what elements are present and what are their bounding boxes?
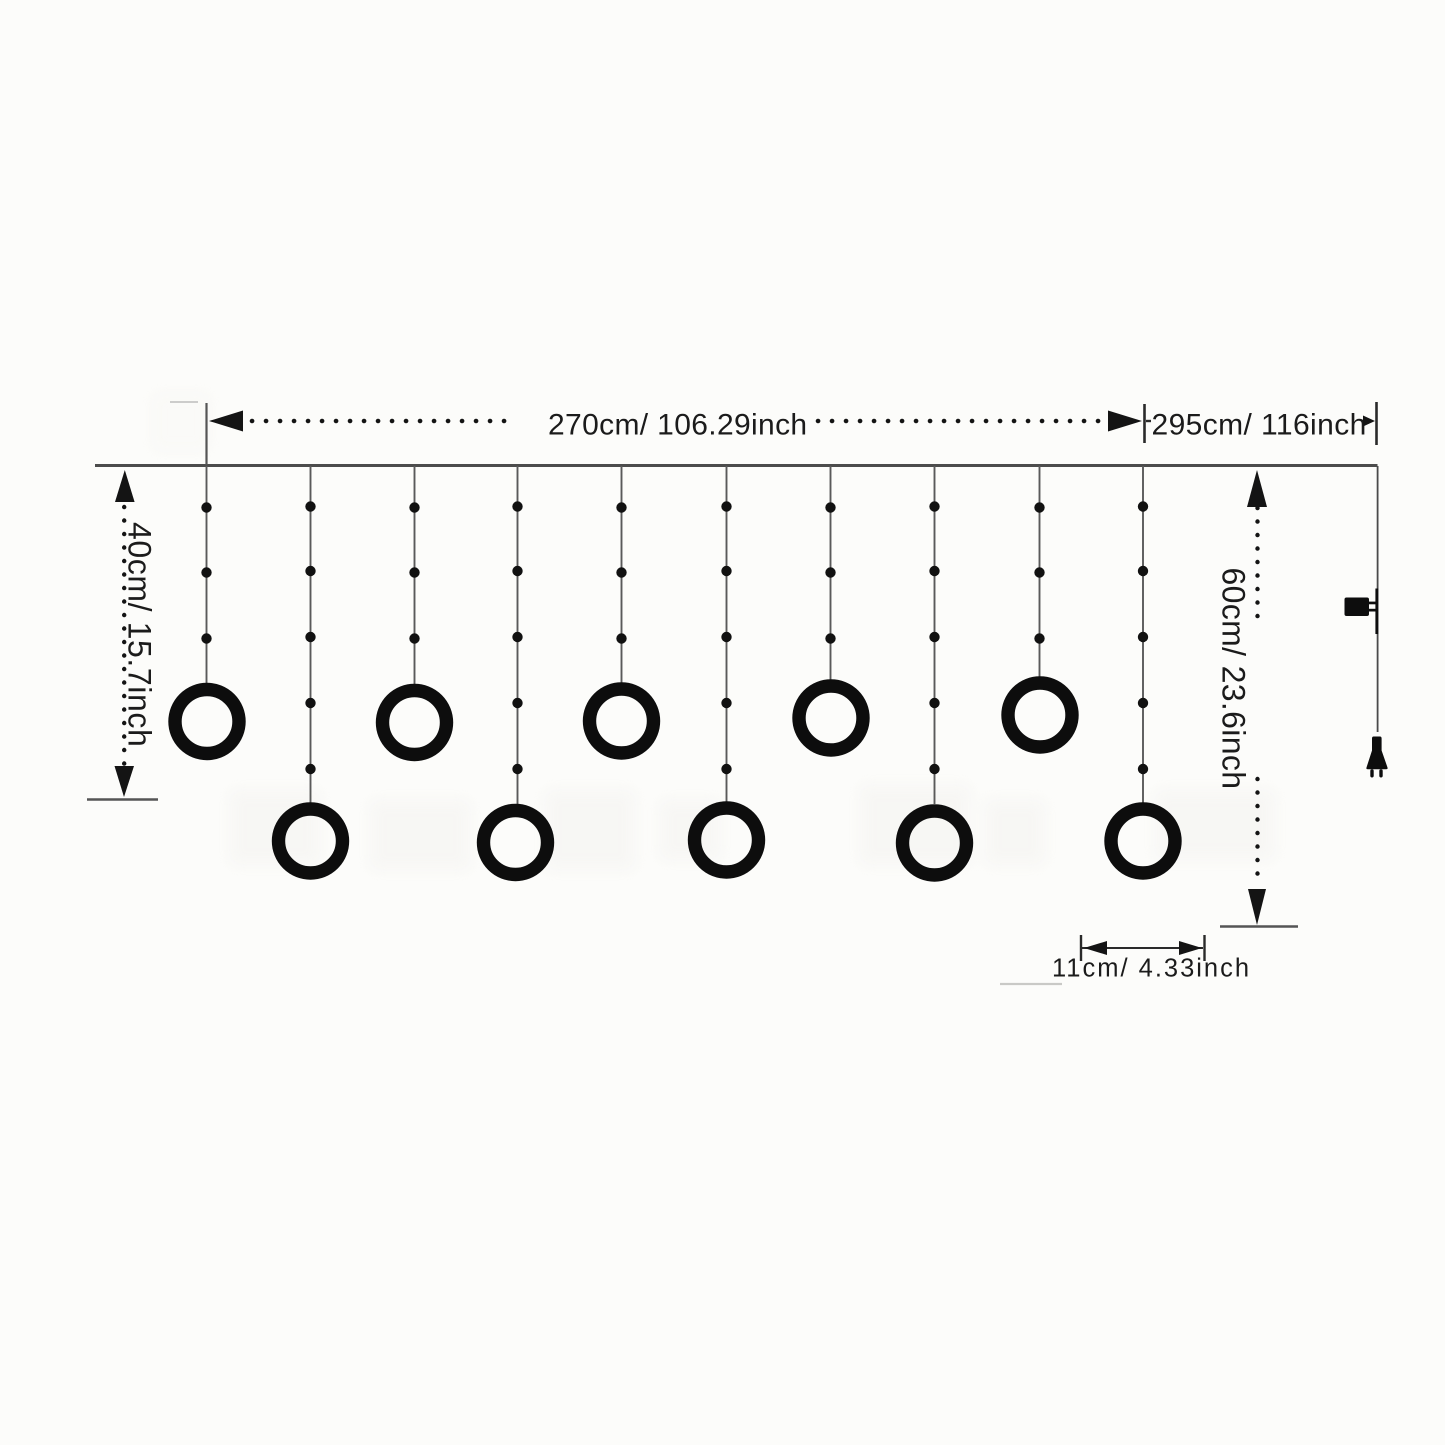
svg-text:270cm/ 106.29inch: 270cm/ 106.29inch <box>548 409 807 442</box>
svg-text:295cm/ 116inch: 295cm/ 116inch <box>1152 409 1367 442</box>
svg-text:60cm/ 23.6inch: 60cm/ 23.6inch <box>1216 568 1252 790</box>
svg-text:11cm/ 4.33inch: 11cm/ 4.33inch <box>1052 955 1251 983</box>
svg-text:40cm/ 15.7inch: 40cm/ 15.7inch <box>122 522 158 747</box>
